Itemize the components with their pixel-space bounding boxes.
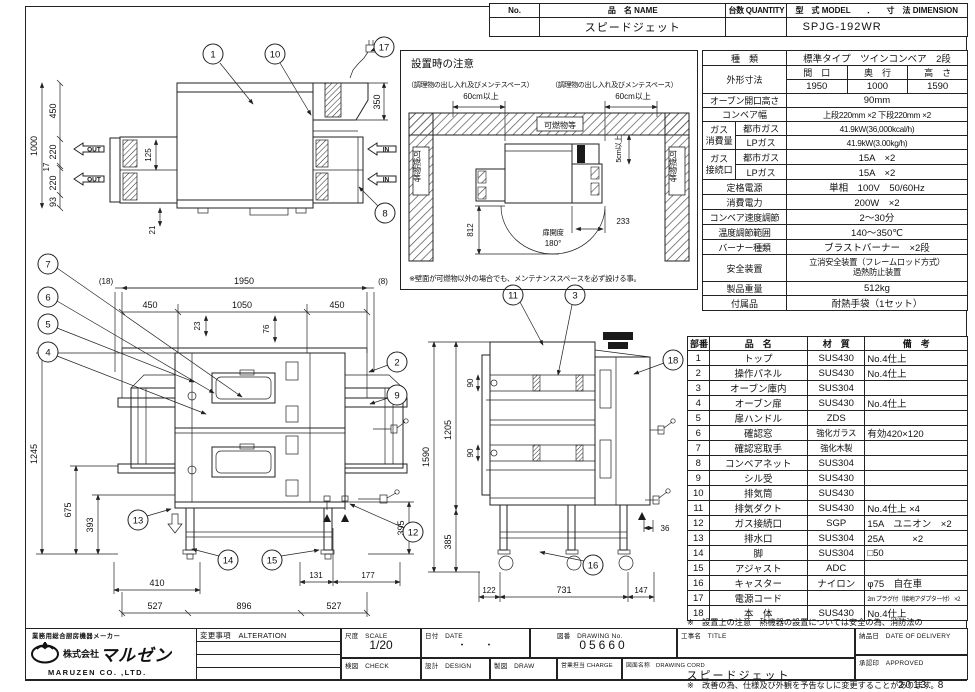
date-box: 日付 DATE ・ ・	[421, 628, 530, 658]
spec-sublabel: 奥 行	[847, 66, 908, 80]
spec-value: 1590	[908, 80, 968, 94]
install-notice-title: 設置時の注意	[411, 57, 474, 70]
front-view-drawing: (18) 1950 (8) 450 1050 450 23 76	[28, 252, 428, 627]
spec-label: 外形寸法	[703, 66, 787, 94]
dim-label: 896	[236, 601, 251, 611]
approved-label: 承認印 APPROVED	[859, 657, 924, 667]
stand-front	[168, 502, 345, 559]
dim-label: 76	[262, 324, 271, 333]
header-qty-label: 台数 QUANTITY	[726, 4, 786, 18]
spec-sublabel: LPガス	[736, 136, 787, 150]
spec-value: 41.9kW(36,000kcal/h)	[786, 122, 967, 136]
parts-header: 備 考	[865, 337, 968, 351]
spec-label: コンベア幅	[703, 108, 787, 122]
spec-value: 200W ×2	[786, 195, 967, 210]
table-row: 3オーブン庫内SUS304	[688, 381, 968, 396]
header-no-value	[490, 18, 540, 37]
spec-label: 温度調節範囲	[703, 225, 787, 240]
spec-value: 単相 100V 50/60Hz	[786, 180, 967, 195]
balloon-15: 15	[262, 550, 319, 570]
svg-text:2: 2	[394, 358, 399, 369]
scale-box: 尺度 SCALE 1/20	[341, 628, 421, 658]
spec-value: 512kg	[786, 282, 967, 296]
oven-body-front	[122, 348, 367, 502]
spec-table: 種 類 標準タイプ ツインコンベア 2段 外形寸法 間 口 奥 行 高 さ 19…	[702, 50, 968, 311]
front-bottom-dims: 410 131 177 527 896 527	[114, 528, 400, 617]
stand-side	[498, 505, 633, 570]
dim-label: 393	[85, 517, 95, 532]
spec-label: ガス消費量	[703, 122, 736, 150]
spec-label: 製品重量	[703, 282, 787, 296]
maintenance-note-right: （調理物の出し入れ及びメンテスペース）	[551, 80, 677, 89]
balloon-11: 11	[503, 285, 543, 345]
svg-text:10: 10	[270, 50, 281, 61]
oven-plan-mini	[476, 144, 602, 203]
spec-value: 立消安全装置（フレームロッド方式）過熱防止装置	[786, 255, 967, 282]
balloon-10: 10	[265, 44, 311, 115]
table-row: 16キャスターナイロンφ75 自在車	[688, 576, 968, 591]
oven-body-plan	[177, 83, 313, 215]
combustible-label-top: 可燃物等	[544, 120, 576, 130]
drawing-name-box: 図面名称 DRAWING CORD スピードジェット	[622, 658, 855, 680]
company-prefix: 株式会社	[63, 647, 99, 660]
balloon-1: 1	[203, 44, 253, 104]
svg-text:15: 15	[267, 556, 278, 567]
dim-label: (8)	[378, 277, 388, 286]
spec-value: 1000	[847, 80, 908, 94]
side-cabinet	[595, 332, 650, 505]
parts-header: 材 質	[807, 337, 864, 351]
install-wall-note: ※壁面が可燃物以外の場合でも、メンテナンススペースを必ず設ける事。	[409, 274, 641, 283]
svg-text:9: 9	[394, 391, 399, 402]
power-cord-glyph	[350, 40, 375, 78]
svg-text:4: 4	[45, 348, 50, 359]
product-name: スピードジェット	[540, 18, 726, 37]
check-box: 検図 CHECK	[341, 658, 421, 680]
clearance-left: 60cm以上	[463, 92, 499, 101]
dim-label: 23	[193, 321, 202, 330]
right-conveyor-plan	[313, 137, 363, 203]
oven-body-side	[482, 342, 595, 505]
dim-label: 21	[148, 225, 157, 234]
spec-value: 15A ×2	[786, 165, 967, 180]
spec-value: 15A ×2	[786, 150, 967, 165]
header-no-label: No.	[490, 4, 540, 18]
svg-text:3: 3	[572, 291, 577, 302]
balloon-6: 6	[38, 287, 214, 393]
side-dims: 1590 1205 385 90 90 36 122 731 147	[421, 342, 670, 602]
spec-value: ブラストバーナー ×2段	[786, 240, 967, 255]
spec-sublabel: 高 さ	[908, 66, 968, 80]
dim-label: 220	[48, 175, 58, 190]
issue-date: 2013. 8	[898, 680, 945, 691]
dim-label: 450	[142, 300, 157, 310]
dim-label: 527	[147, 601, 162, 611]
side-view-drawing: 1590 1205 385 90 90 36 122 731 147 11	[420, 280, 710, 625]
dim-label: 1950	[234, 276, 254, 286]
title-label: 工事名 TITLE	[681, 630, 727, 640]
exhaust-unit-plan	[313, 83, 368, 131]
scale-value: 1/20	[342, 638, 420, 652]
spec-value: 90mm	[786, 94, 967, 108]
delivery-box: 納品日 DATE OF DELIVERY	[855, 628, 968, 655]
balloon-13: 13	[128, 509, 171, 530]
in-label-1: IN	[383, 147, 390, 154]
svg-text:12: 12	[408, 528, 419, 539]
dim-label: 125	[144, 148, 153, 162]
left-conveyor-front	[118, 375, 175, 473]
model-number: SPJG-192WR	[786, 18, 967, 37]
dim-label: 1205	[443, 420, 453, 440]
maker-box: 業務用総合厨房機器メーカー 株式会社 マルゼン MARUZEN CO. ,LTD…	[25, 628, 197, 680]
table-row: 7確認窓取手強化木製	[688, 441, 968, 456]
out-arrow-2: OUT	[74, 173, 104, 185]
spec-value: 耐熱手袋（1セット）	[786, 296, 967, 311]
spec-value: 41.9kW(3.00kg/h)	[786, 136, 967, 150]
dim-label: 90	[466, 378, 475, 387]
dim-label: (18)	[99, 277, 114, 286]
balloon-18: 18	[634, 350, 683, 374]
clearance-right: 60cm以上	[615, 92, 651, 101]
dim-label: 17	[42, 162, 51, 171]
spec-label: ガス接続口	[703, 150, 736, 180]
svg-text:11: 11	[508, 291, 518, 302]
balloon-3: 3	[558, 285, 585, 375]
alteration-box: 変更事項 ALTERATION	[196, 628, 341, 680]
spec-label: コンベア速度調節	[703, 210, 787, 225]
date-value: ・ ・	[422, 638, 529, 651]
balloon-16: 16	[540, 552, 603, 575]
alteration-divider	[197, 654, 340, 655]
dim-label: 731	[556, 585, 571, 595]
table-row: 10排気筒SUS430	[688, 486, 968, 501]
dim-label: 90	[466, 448, 475, 457]
parts-table: 部番 品 名 材 質 備 考 1トップSUS430No.4仕上 2操作パネルSU…	[687, 336, 968, 621]
spec-value: 1950	[786, 80, 847, 94]
maker-tagline: 業務用総合厨房機器メーカー	[32, 631, 120, 640]
spec-sublabel: 間 口	[786, 66, 847, 80]
out-label-2: OUT	[87, 177, 101, 184]
balloon-7: 7	[38, 254, 242, 397]
gas-pipes-front	[323, 490, 399, 522]
door-swing-arc: 扉開度 180°	[501, 206, 605, 254]
header-name-label: 品 名 NAME	[540, 4, 726, 18]
company-name-en: MARUZEN CO. ,LTD.	[48, 668, 147, 677]
table-row: 2操作パネルSUS430No.4仕上	[688, 366, 968, 381]
dim-label: 450	[329, 300, 344, 310]
svg-text:7: 7	[45, 260, 50, 271]
spec-value: 標準タイプ ツインコンベア 2段	[786, 51, 967, 66]
table-row: 11排気ダクトSUS430No.4仕上 ×4	[688, 501, 968, 516]
out-arrow-1: OUT	[74, 143, 104, 155]
balloon-17: 17	[371, 37, 394, 57]
spec-sublabel: 都市ガス	[736, 122, 787, 136]
dim-label: 131	[309, 571, 323, 580]
header-model-dim-label: 型 式 MODEL ． 寸 法 DIMENSION	[786, 4, 967, 18]
svg-text:8: 8	[382, 209, 387, 220]
dim-label: 350	[372, 94, 382, 109]
combustible-label-left: 可燃物等	[413, 150, 422, 182]
plan-view-drawing: OUT OUT IN IN 1000 450 220	[28, 36, 400, 248]
dim-label: 36	[661, 524, 670, 533]
alteration-divider	[197, 641, 340, 642]
svg-text:16: 16	[588, 561, 599, 572]
table-row: 12ガス接続口SGP15A ユニオン ×2	[688, 516, 968, 531]
table-row: 15アジャストADC	[688, 561, 968, 576]
title-box: 工事名 TITLE	[677, 628, 855, 658]
parts-header-row: 部番 品 名 材 質 備 考	[688, 337, 968, 351]
spec-value: 140～350℃	[786, 225, 967, 240]
dim-label: 177	[361, 571, 375, 580]
dim-label: 527	[326, 601, 341, 611]
front-left-dims: 1245 675 393	[29, 353, 175, 554]
in-label-2: IN	[383, 177, 390, 184]
draw-box: 製図 DRAW	[490, 658, 557, 680]
drawing-no-box: 図番 DRAWING No. 05660	[530, 628, 677, 658]
combustible-label-right: 可燃物等	[669, 150, 678, 182]
dim-label: 220	[48, 144, 58, 159]
table-row: 8コンベアネットSUS304	[688, 456, 968, 471]
dim-label: 675	[63, 502, 73, 517]
balloon-8: 8	[359, 187, 395, 223]
spec-sublabel: LPガス	[736, 165, 787, 180]
spec-label: 種 類	[703, 51, 787, 66]
table-row: 1トップSUS430No.4仕上	[688, 351, 968, 366]
dim-label: 147	[634, 586, 648, 595]
draw-label: 製図 DRAW	[494, 660, 535, 670]
table-row: 13排水口SUS30425A ×2	[688, 531, 968, 546]
dim-label: 385	[443, 534, 453, 549]
design-box: 設計 DESIGN	[421, 658, 490, 680]
approved-box: 承認印 APPROVED	[855, 655, 968, 680]
spec-label: オーブン開口高さ	[703, 94, 787, 108]
spec-value: 上段220mm ×2 下段220mm ×2	[786, 108, 967, 122]
parts-header: 品 名	[709, 337, 807, 351]
table-row: 14脚SUS304□50	[688, 546, 968, 561]
dim-label: 93	[48, 197, 58, 207]
company-name: マルゼン	[100, 641, 172, 666]
maintenance-note-left: （調理物の出し入れ及びメンテスペース）	[407, 80, 533, 89]
drawing-sheet: No. 品 名 NAME 台数 QUANTITY 型 式 MODEL ． 寸 法…	[0, 0, 975, 692]
dim-label: 122	[482, 586, 496, 595]
install-notice-box: 設置時の注意 （調理物の出し入れ及びメンテスペース） （調理物の出し入れ及びメン…	[400, 50, 698, 290]
svg-text:18: 18	[668, 356, 679, 367]
header-table: No. 品 名 NAME 台数 QUANTITY 型 式 MODEL ． 寸 法…	[489, 3, 968, 37]
out-label-1: OUT	[87, 147, 101, 154]
dim-label: 1000	[29, 136, 39, 156]
svg-text:6: 6	[45, 293, 50, 304]
alteration-label: 変更事項 ALTERATION	[200, 630, 286, 641]
door-open-label: 扉開度	[542, 228, 564, 237]
svg-text:1: 1	[210, 50, 215, 61]
balloon-14: 14	[192, 549, 238, 570]
table-row: 6確認窓強化ガラス有効420×120	[688, 426, 968, 441]
in-arrow-2: IN	[368, 173, 396, 185]
dim-label: 1050	[232, 300, 252, 310]
table-row: 9シル受SUS430	[688, 471, 968, 486]
balloon-2: 2	[369, 352, 407, 372]
spec-label: 付属品	[703, 296, 787, 311]
header-qty-value	[726, 18, 786, 37]
table-row: 4オーブン扉SUS430No.4仕上	[688, 396, 968, 411]
table-row: 5扉ハンドルZDS	[688, 411, 968, 426]
spec-label: 消費電力	[703, 195, 787, 210]
delivery-label: 納品日 DATE OF DELIVERY	[859, 630, 951, 640]
design-label: 設計 DESIGN	[425, 660, 471, 670]
parts-header: 部番	[688, 337, 710, 351]
drawing-name-value: スピードジェット	[623, 667, 854, 683]
dim-label: 233	[616, 217, 630, 226]
balloon-12: 12	[350, 504, 423, 542]
spec-sublabel: 都市ガス	[736, 150, 787, 165]
svg-text:5: 5	[45, 320, 50, 331]
svg-text:14: 14	[223, 556, 234, 567]
charge-label: 営業担当 CHARGE	[561, 660, 613, 669]
check-label: 検図 CHECK	[345, 660, 389, 670]
drawing-no-value: 05660	[531, 638, 676, 652]
install-notice-drawing: 設置時の注意 （調理物の出し入れ及びメンテスペース） （調理物の出し入れ及びメン…	[401, 51, 697, 289]
spec-value: 2～30分	[786, 210, 967, 225]
alteration-divider	[197, 667, 340, 668]
dim-label: 450	[48, 103, 58, 118]
charge-box: 営業担当 CHARGE	[557, 658, 622, 680]
clearance-back: 5cm以上	[614, 134, 623, 162]
door-angle: 180°	[545, 239, 562, 248]
spec-label: バーナー種類	[703, 240, 787, 255]
maruzen-logo-icon	[30, 641, 60, 665]
svg-text:17: 17	[379, 43, 390, 54]
footnote-1: ※ 設置上の注意 熱機器の設置については安全の為、消防法の	[687, 618, 969, 629]
in-arrow-1: IN	[368, 143, 396, 155]
dim-label: 1590	[421, 447, 431, 467]
svg-text:13: 13	[133, 516, 144, 527]
spec-label: 定格電源	[703, 180, 787, 195]
spec-label: 安全装置	[703, 255, 787, 282]
dim-label: 410	[149, 578, 164, 588]
dim-label: 812	[466, 223, 475, 237]
dim-label: 1245	[29, 444, 39, 464]
company-logo-row: 株式会社 マルゼン	[30, 640, 172, 666]
